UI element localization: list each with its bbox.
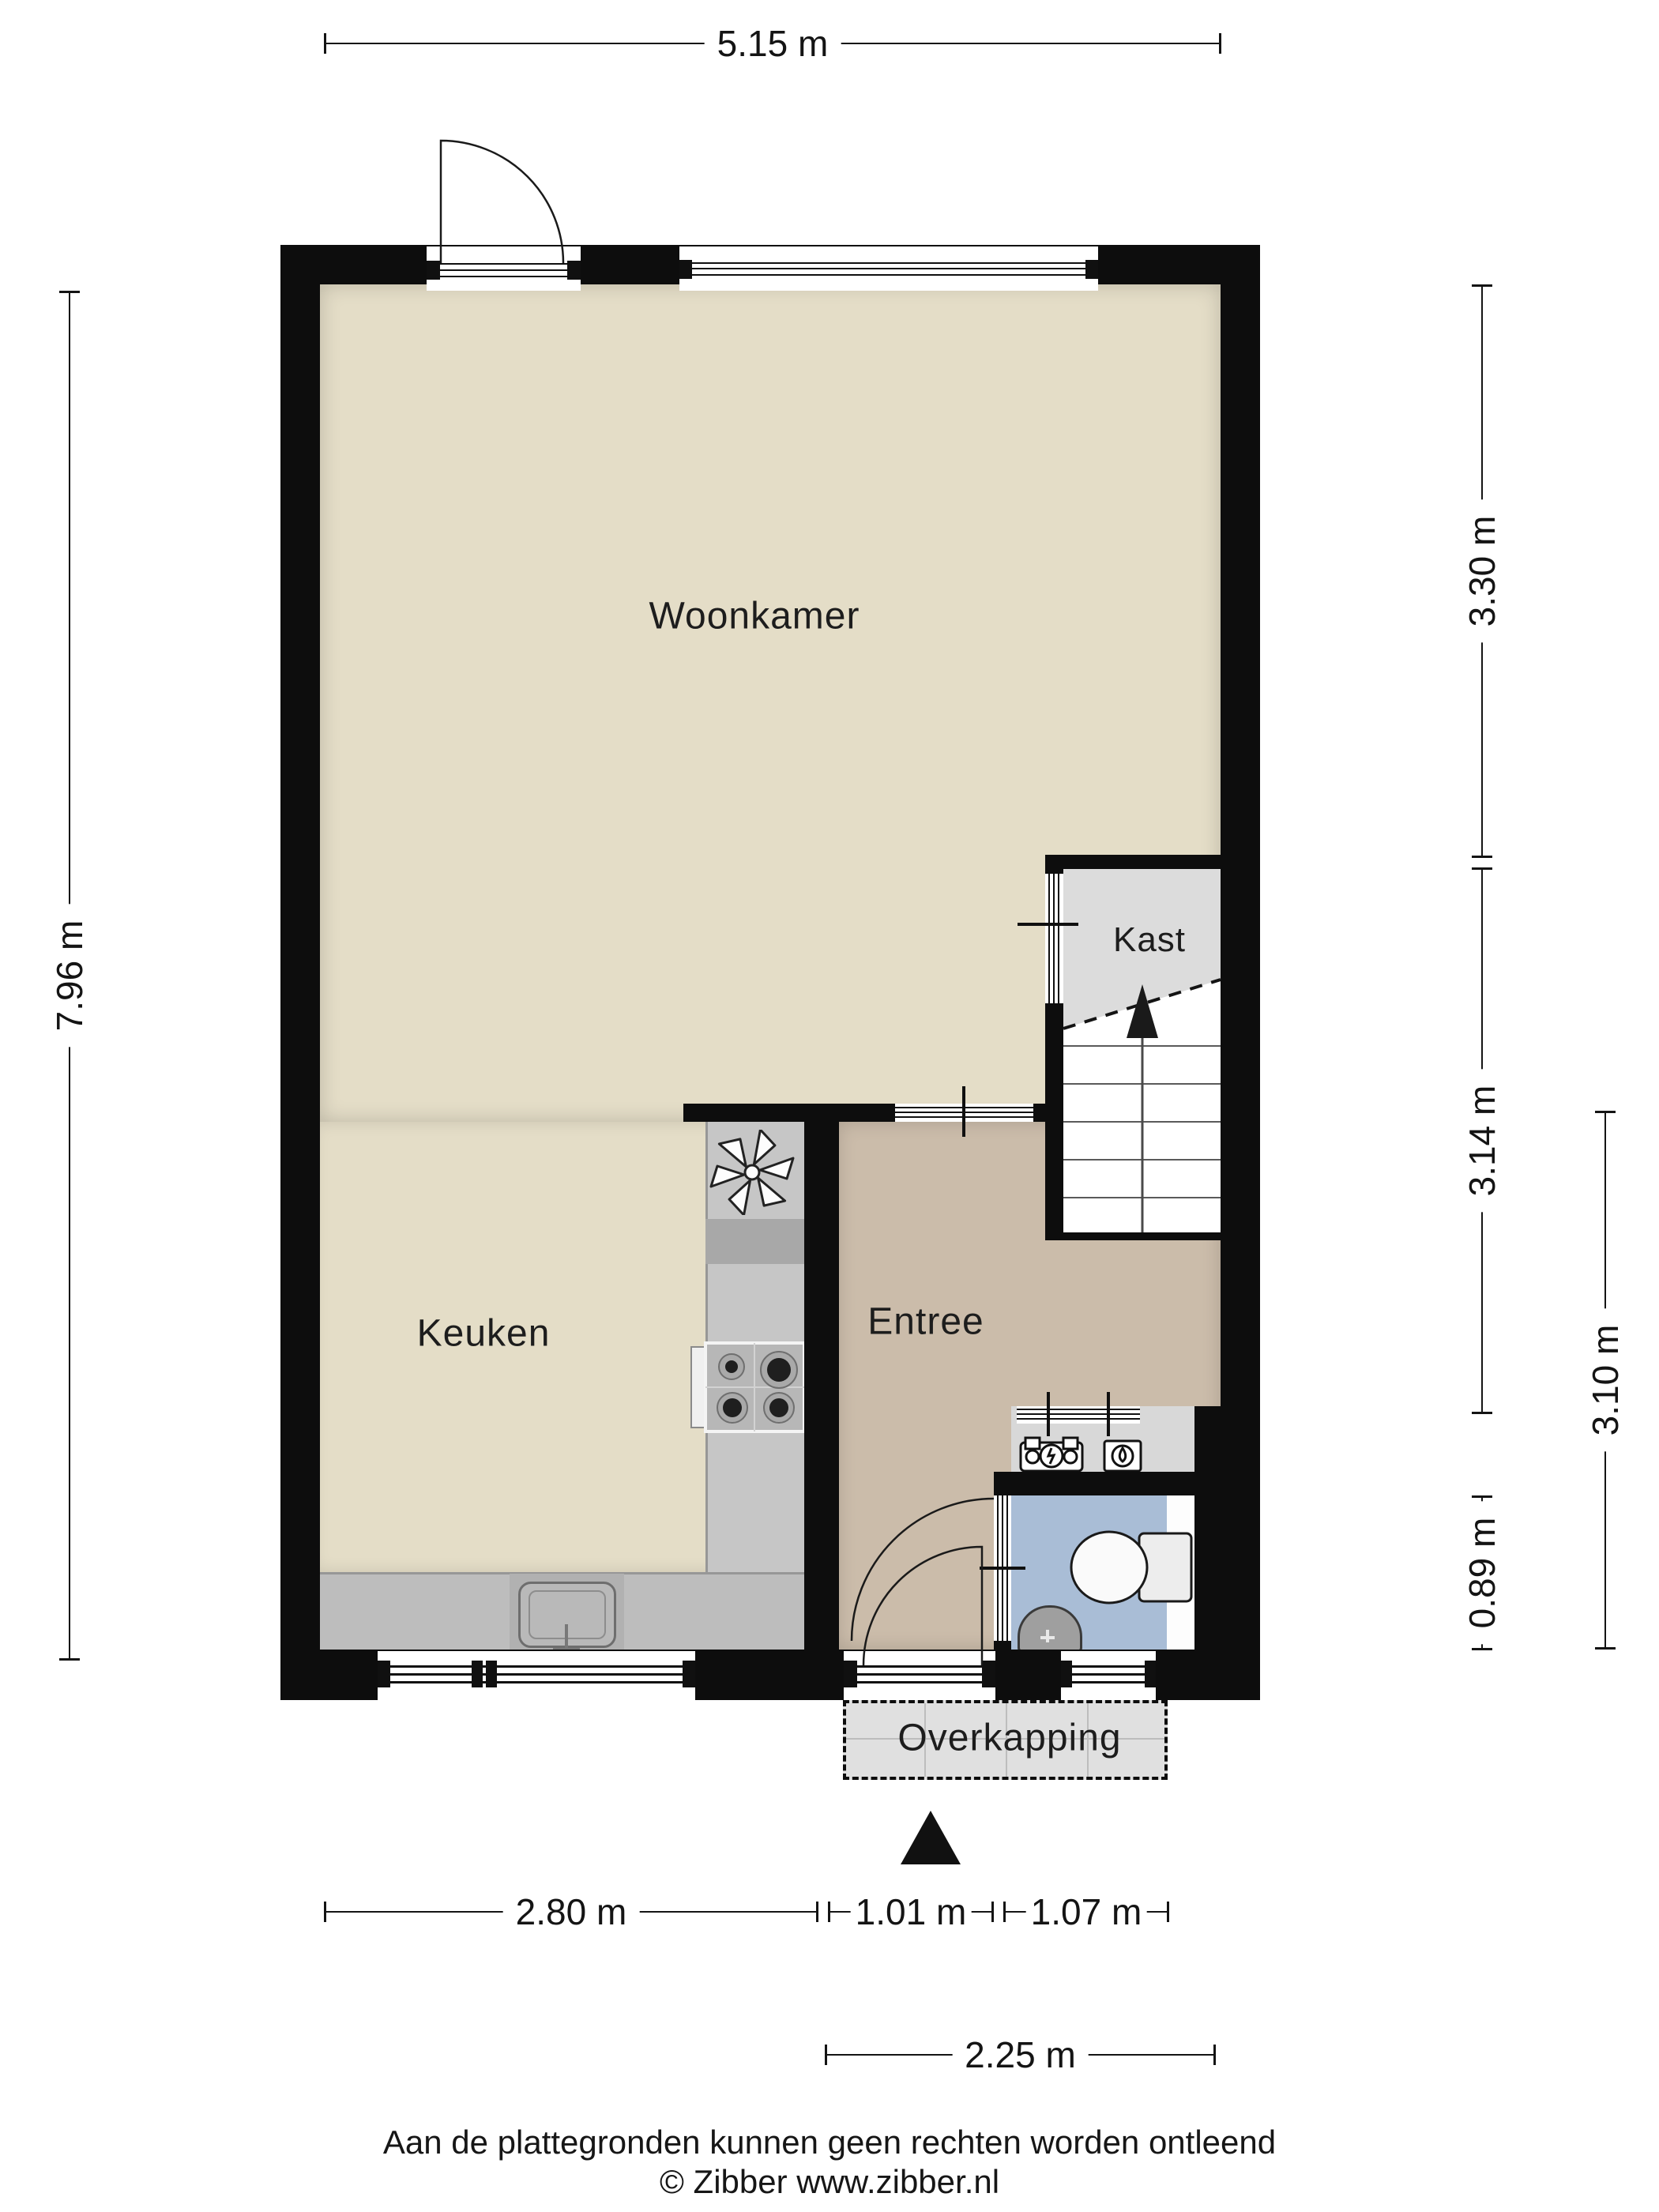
toilet-right-wall-filler	[1194, 1406, 1221, 1650]
dim-right-toilet: 0.89 m	[1461, 1495, 1503, 1650]
dim-bottom-right: 1.07 m	[1003, 1893, 1169, 1931]
dim-top-width-label: 5.15 m	[705, 22, 841, 65]
dim-right-toilet-label: 0.89 m	[1461, 1502, 1503, 1645]
toilet-window	[1061, 1651, 1156, 1700]
dim-right-inner: 3.10 m	[1585, 1111, 1626, 1650]
internal-window-tick	[962, 1086, 965, 1137]
dim-right-inner-label: 3.10 m	[1584, 1309, 1627, 1452]
electric-meter-icon	[1019, 1436, 1084, 1473]
dim-right-upper-label: 3.30 m	[1461, 500, 1503, 643]
kast-door	[1045, 874, 1063, 1003]
dim-bottom-keuken: 2.80 m	[324, 1893, 818, 1931]
dim-bottom-keuken-label: 2.80 m	[503, 1890, 640, 1933]
dim-bottom-overkapping-label: 2.25 m	[952, 2033, 1089, 2076]
overkapping-label: Overkapping	[897, 1717, 1121, 1760]
wall-toilet-top	[994, 1472, 1221, 1495]
keuken-window	[378, 1651, 695, 1700]
dim-bottom-right-label: 1.07 m	[1026, 1890, 1147, 1933]
wall-left	[280, 245, 320, 1700]
meter-niche-tick-left	[1047, 1392, 1050, 1436]
water-heater-icon	[1103, 1439, 1142, 1473]
dim-right-middle-label: 3.14 m	[1461, 1070, 1503, 1213]
dim-bottom-entree: 1.01 m	[828, 1893, 994, 1931]
disclaimer-text: Aan de plattegronden kunnen geen rechten…	[0, 2124, 1659, 2161]
stove-icon	[690, 1341, 806, 1433]
meter-niche-tick-right	[1107, 1392, 1110, 1436]
credit-text: © Zibber www.zibber.nl	[0, 2163, 1659, 2201]
woonkamer-label: Woonkamer	[649, 595, 860, 638]
north-arrow-icon	[901, 1811, 961, 1864]
wall-kast-top	[1045, 855, 1221, 869]
keuken-label: Keuken	[417, 1312, 551, 1356]
entree-label: Entree	[867, 1300, 984, 1344]
kast-door-tick	[1018, 923, 1078, 926]
toilet-door-tick	[980, 1567, 1025, 1570]
wall-right	[1221, 245, 1260, 1700]
wall-keuken-entree	[804, 1104, 839, 1651]
dim-bottom-entree-label: 1.01 m	[851, 1890, 972, 1933]
kitchen-counter-appliance-band	[705, 1219, 804, 1264]
dim-bottom-overkapping: 2.25 m	[825, 2036, 1216, 2074]
meter-niche-band	[1017, 1406, 1140, 1424]
extractor-fan-icon	[709, 1130, 795, 1215]
kast-label: Kast	[1113, 920, 1186, 960]
top-window	[679, 246, 1098, 291]
top-door-opening	[427, 246, 581, 291]
faucet-icon	[565, 1624, 568, 1651]
dim-top-width: 5.15 m	[324, 24, 1221, 62]
oven-handle-icon	[691, 1347, 705, 1428]
dim-left-height: 7.96 m	[49, 291, 90, 1661]
dim-left-height-label: 7.96 m	[48, 905, 91, 1048]
entree-door-opening	[844, 1651, 995, 1700]
floor-plan: Overkapping Woonkamer Keuken Entree Kast…	[0, 0, 1659, 2212]
toilet-icon	[1059, 1525, 1201, 1612]
dim-right-middle: 3.14 m	[1461, 867, 1503, 1414]
dim-right-upper: 3.30 m	[1461, 284, 1503, 858]
